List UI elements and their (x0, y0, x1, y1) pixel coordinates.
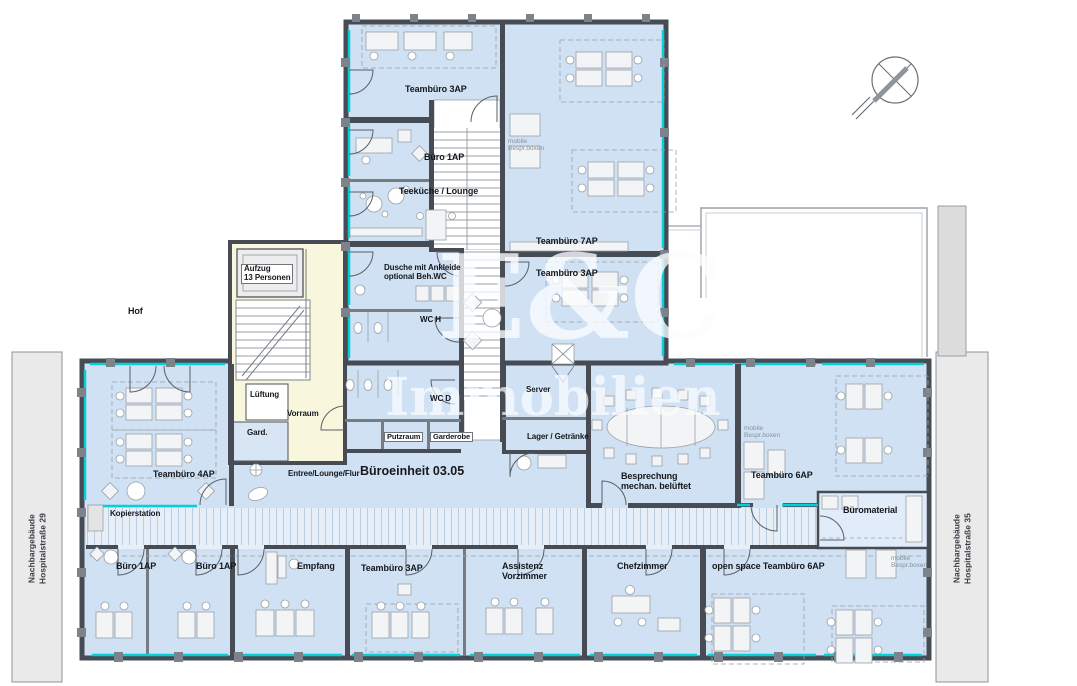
room-label-lager: Lager / Getränke (527, 433, 589, 442)
room-label-buero-1ap-top: Büro 1AP (424, 152, 464, 162)
label-mobile-boxen-mid: mobile Bespr.boxen (744, 425, 780, 440)
terrace-outline (668, 208, 927, 357)
room-label-teambuero-4ap: Teambüro 4AP (153, 469, 215, 479)
label-mobile-boxen-top: mobile Bespr.boxen (508, 138, 544, 153)
room-label-dusche: Dusche mit Ankleide optional Beh.WC (384, 264, 461, 282)
floor-plan-drawing (0, 0, 1077, 686)
room-label-vorraum: Vorraum (287, 410, 319, 419)
room-label-buero-1ap-b2: Büro 1AP (196, 561, 236, 571)
label-neighbor-right: Nachbargebäude Hospitalstraße 35 (951, 484, 972, 614)
room-label-teambuero-3ap-bottom: Teambüro 3AP (361, 563, 423, 573)
room-label-openspace: open space Teambüro 6AP (712, 561, 825, 571)
floor-plan-page: E&C Immobilien Teambüro 3AP Büro 1AP Tee… (0, 0, 1077, 686)
room-label-teekueche: Teeküche / Lounge (399, 186, 478, 196)
room-label-teambuero-7ap: Teambüro 7AP (536, 236, 598, 246)
corridor (86, 508, 818, 545)
room-label-garderobe: Garderobe (430, 432, 473, 442)
room-label-teambuero-3ap-mid: Teambüro 3AP (536, 268, 598, 278)
room-label-gard: Gard. (247, 429, 267, 438)
room-label-bueromaterial: Büromaterial (843, 505, 897, 515)
room-label-chefzimmer: Chefzimmer (617, 561, 668, 571)
label-kopierstation: Kopierstation (110, 510, 160, 519)
room-label-wc-d: WC D (430, 395, 451, 404)
label-aufzug: Aufzug 13 Personen (241, 264, 293, 284)
room-label-lueftung: Lüftung (250, 391, 279, 400)
north-arrow-icon (852, 57, 918, 119)
room-label-server: Server (526, 386, 550, 395)
room-label-putzraum: Putzraum (384, 432, 423, 442)
room-label-teambuero-6ap: Teambüro 6AP (751, 470, 813, 480)
room-label-buero-1ap-b1: Büro 1AP (116, 561, 156, 571)
room-label-teambuero-3ap-top: Teambüro 3AP (405, 84, 467, 94)
staircase (236, 300, 310, 380)
room-label-assistenz: Assistenz Vorzimmer (502, 561, 547, 581)
room-label-empfang: Empfang (297, 561, 335, 571)
label-neighbor-left: Nachbargebäude Hospitalstraße 29 (26, 484, 47, 614)
label-entree: Entree/Lounge/Flur (288, 470, 360, 479)
label-bueroeinheit: Büroeinheit 03.05 (360, 464, 464, 478)
room-label-wc-h: WC H (420, 316, 441, 325)
room-label-besprechung: Besprechung mechan. belüftet (621, 471, 691, 491)
label-mobile-boxen-bottom: mobile Bespr.boxen (891, 555, 927, 570)
label-hof: Hof (128, 306, 143, 316)
